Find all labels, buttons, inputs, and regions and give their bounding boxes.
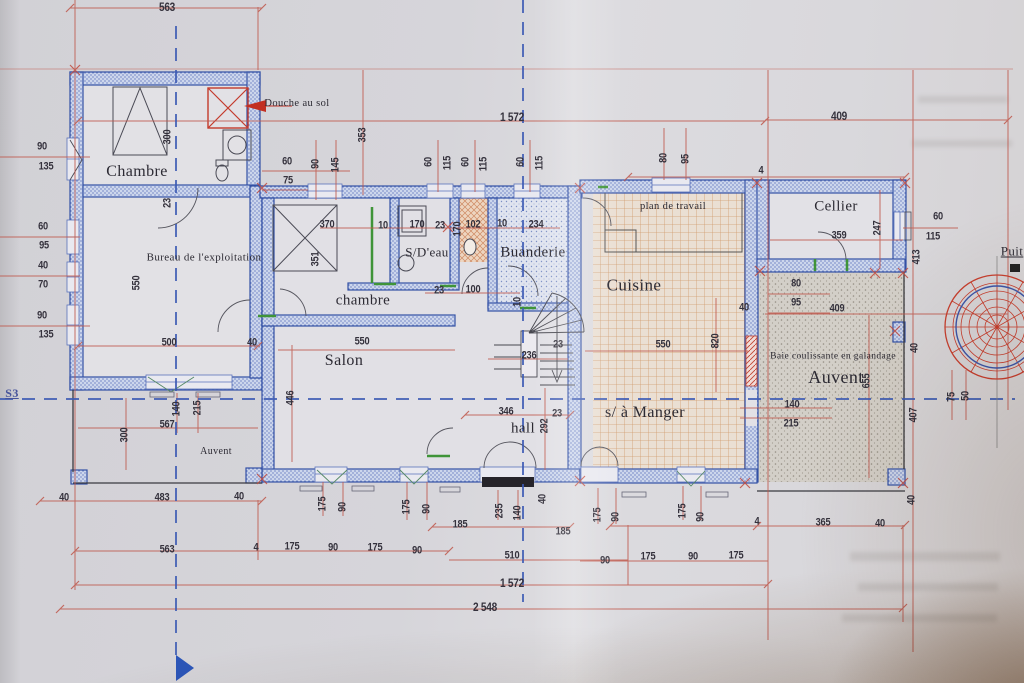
room-label: Buanderie: [500, 246, 565, 261]
dimension-label: 95: [791, 298, 801, 309]
dimension-label: 90: [611, 512, 622, 522]
dimension-label: 80: [791, 279, 801, 290]
dimension-label: 300: [163, 130, 174, 145]
dimension-label: 247: [873, 221, 884, 236]
dimension-label: 4: [254, 543, 259, 554]
dimension-label: 90: [688, 552, 698, 563]
dimension-label: 292: [540, 419, 551, 434]
dimension-label: 50: [961, 391, 972, 401]
dimension-label: 90: [37, 311, 47, 322]
dimension-label: 135: [39, 162, 54, 173]
dimension-label: 409: [831, 110, 847, 122]
dimension-label: 40: [38, 261, 48, 272]
dimension-label: 115: [443, 156, 454, 170]
room-label: S/D'eau: [405, 246, 448, 259]
dimension-label: 215: [784, 419, 799, 430]
dimension-label: 40: [907, 495, 918, 505]
dimension-label: 90: [696, 512, 707, 522]
dimension-label: 483: [155, 493, 170, 504]
dimension-label: 175: [729, 551, 744, 562]
floorplan-photo: ChambreBureau de l'exploitationchambreS/…: [0, 0, 1024, 683]
dimension-label: 370: [320, 220, 335, 231]
dimension-label: 407: [909, 408, 920, 423]
dimension-label: 40: [234, 492, 244, 503]
annotation-label: Puit: [1001, 245, 1024, 258]
dimension-label: 60: [282, 157, 292, 168]
dimension-label: 60: [516, 157, 527, 167]
dimension-label: 175: [641, 552, 656, 563]
room-label: Cellier: [814, 200, 858, 215]
dimension-label: 23: [553, 340, 563, 351]
dimension-label: 80: [659, 153, 670, 163]
dimension-label: 95: [681, 154, 692, 164]
room-label: Bureau de l'exploitation: [147, 253, 262, 264]
dimension-label: 90: [600, 556, 610, 567]
dimension-label: 60: [933, 212, 943, 223]
room-label: Auvent: [808, 368, 863, 386]
dimension-label: 70: [38, 280, 48, 291]
dimension-label: 90: [311, 159, 322, 169]
dimension-label: 567: [160, 420, 175, 431]
dimension-label: 60: [424, 157, 435, 167]
dimension-label: 100: [466, 285, 481, 296]
dimension-label: 90: [37, 142, 47, 153]
dimension-label: 351: [311, 252, 322, 267]
dimension-label: 2 548: [473, 601, 497, 613]
dimension-label: 102: [466, 220, 481, 231]
dimension-label: 23: [163, 198, 174, 208]
room-label: hall: [511, 422, 535, 437]
dimension-label: 40: [247, 338, 257, 349]
dimension-label: 145: [331, 158, 342, 173]
dimension-label: 510: [505, 551, 520, 562]
dimension-label: 500: [162, 338, 177, 349]
dimension-label: 4: [759, 166, 764, 177]
dimension-label: 1 572: [500, 111, 524, 123]
dimension-label: 820: [711, 334, 722, 349]
room-label: Salon: [325, 353, 363, 369]
dimension-label: 90: [328, 543, 338, 554]
dimension-label: 23: [434, 286, 444, 297]
dimension-label: 140: [785, 400, 800, 411]
dimension-label: 413: [912, 250, 923, 265]
annotation-label: Baie coulissante en galandage: [770, 352, 896, 362]
dimension-label: 236: [522, 351, 537, 362]
dimension-label: 175: [593, 508, 604, 523]
annotation-label: S3: [5, 387, 18, 399]
dimension-label: 60: [38, 222, 48, 233]
dimension-label: 300: [120, 428, 131, 443]
dimension-label: 563: [159, 1, 175, 13]
dimension-label: 550: [355, 337, 370, 348]
room-label: s/ à Manger: [605, 405, 685, 421]
room-label: Auvent: [200, 447, 232, 457]
dimension-label: 40: [910, 343, 921, 353]
dimension-label: 359: [832, 231, 847, 242]
dimension-label: 23: [435, 221, 445, 232]
dimension-label: 185: [556, 527, 571, 538]
dimension-label: 550: [656, 340, 671, 351]
dimension-label: 140: [172, 402, 183, 417]
dimension-label: 235: [495, 504, 506, 519]
dimension-label: 346: [499, 407, 514, 418]
dimension-label: 23: [552, 409, 562, 420]
dimension-label: 353: [358, 128, 369, 143]
dimension-label: 175: [368, 543, 383, 554]
room-label: Chambre: [106, 164, 167, 180]
dimension-label: 40: [59, 493, 69, 504]
dimension-label: 10: [378, 221, 388, 232]
dimension-label: 550: [132, 276, 143, 291]
dimension-label: 446: [286, 391, 297, 406]
dimension-label: 655: [862, 374, 873, 389]
dimension-label: 170: [410, 220, 425, 231]
dimension-label: 215: [193, 401, 204, 416]
dimension-label: 409: [830, 304, 845, 315]
dimension-label: 135: [39, 330, 54, 341]
room-label: Cuisine: [607, 277, 662, 294]
dimension-label: 175: [402, 500, 413, 515]
dimension-label: 40: [875, 519, 885, 530]
dimension-label: 175: [318, 497, 329, 512]
dimension-label: 90: [412, 546, 422, 557]
labels-layer: ChambreBureau de l'exploitationchambreS/…: [0, 0, 1024, 683]
dimension-label: 90: [338, 502, 349, 512]
dimension-label: 40: [739, 303, 749, 314]
dimension-label: 40: [538, 494, 549, 504]
dimension-label: 10: [497, 219, 507, 230]
dimension-label: 115: [479, 157, 490, 171]
dimension-label: 4: [755, 517, 760, 528]
room-label: chambre: [336, 294, 390, 309]
dimension-label: 60: [461, 157, 472, 167]
dimension-label: 115: [535, 156, 546, 170]
dimension-label: 175: [678, 504, 689, 519]
dimension-label: 115: [926, 232, 940, 243]
dimension-label: 75: [283, 176, 293, 187]
dimension-label: 140: [513, 506, 524, 521]
dimension-label: 185: [453, 520, 468, 531]
dimension-label: 234: [529, 220, 544, 231]
dimension-label: 365: [816, 518, 831, 529]
dimension-label: 170: [453, 222, 464, 237]
dimension-label: 90: [422, 504, 433, 514]
dimension-label: 75: [947, 392, 958, 402]
dimension-label: 563: [160, 545, 175, 556]
annotation-label: plan de travail: [640, 202, 706, 213]
annotation-label: Douche au sol: [264, 99, 329, 110]
dimension-label: 95: [39, 241, 49, 252]
dimension-label: 1 572: [500, 577, 524, 589]
dimension-label: 175: [285, 542, 300, 553]
dimension-label: 10: [513, 297, 524, 307]
